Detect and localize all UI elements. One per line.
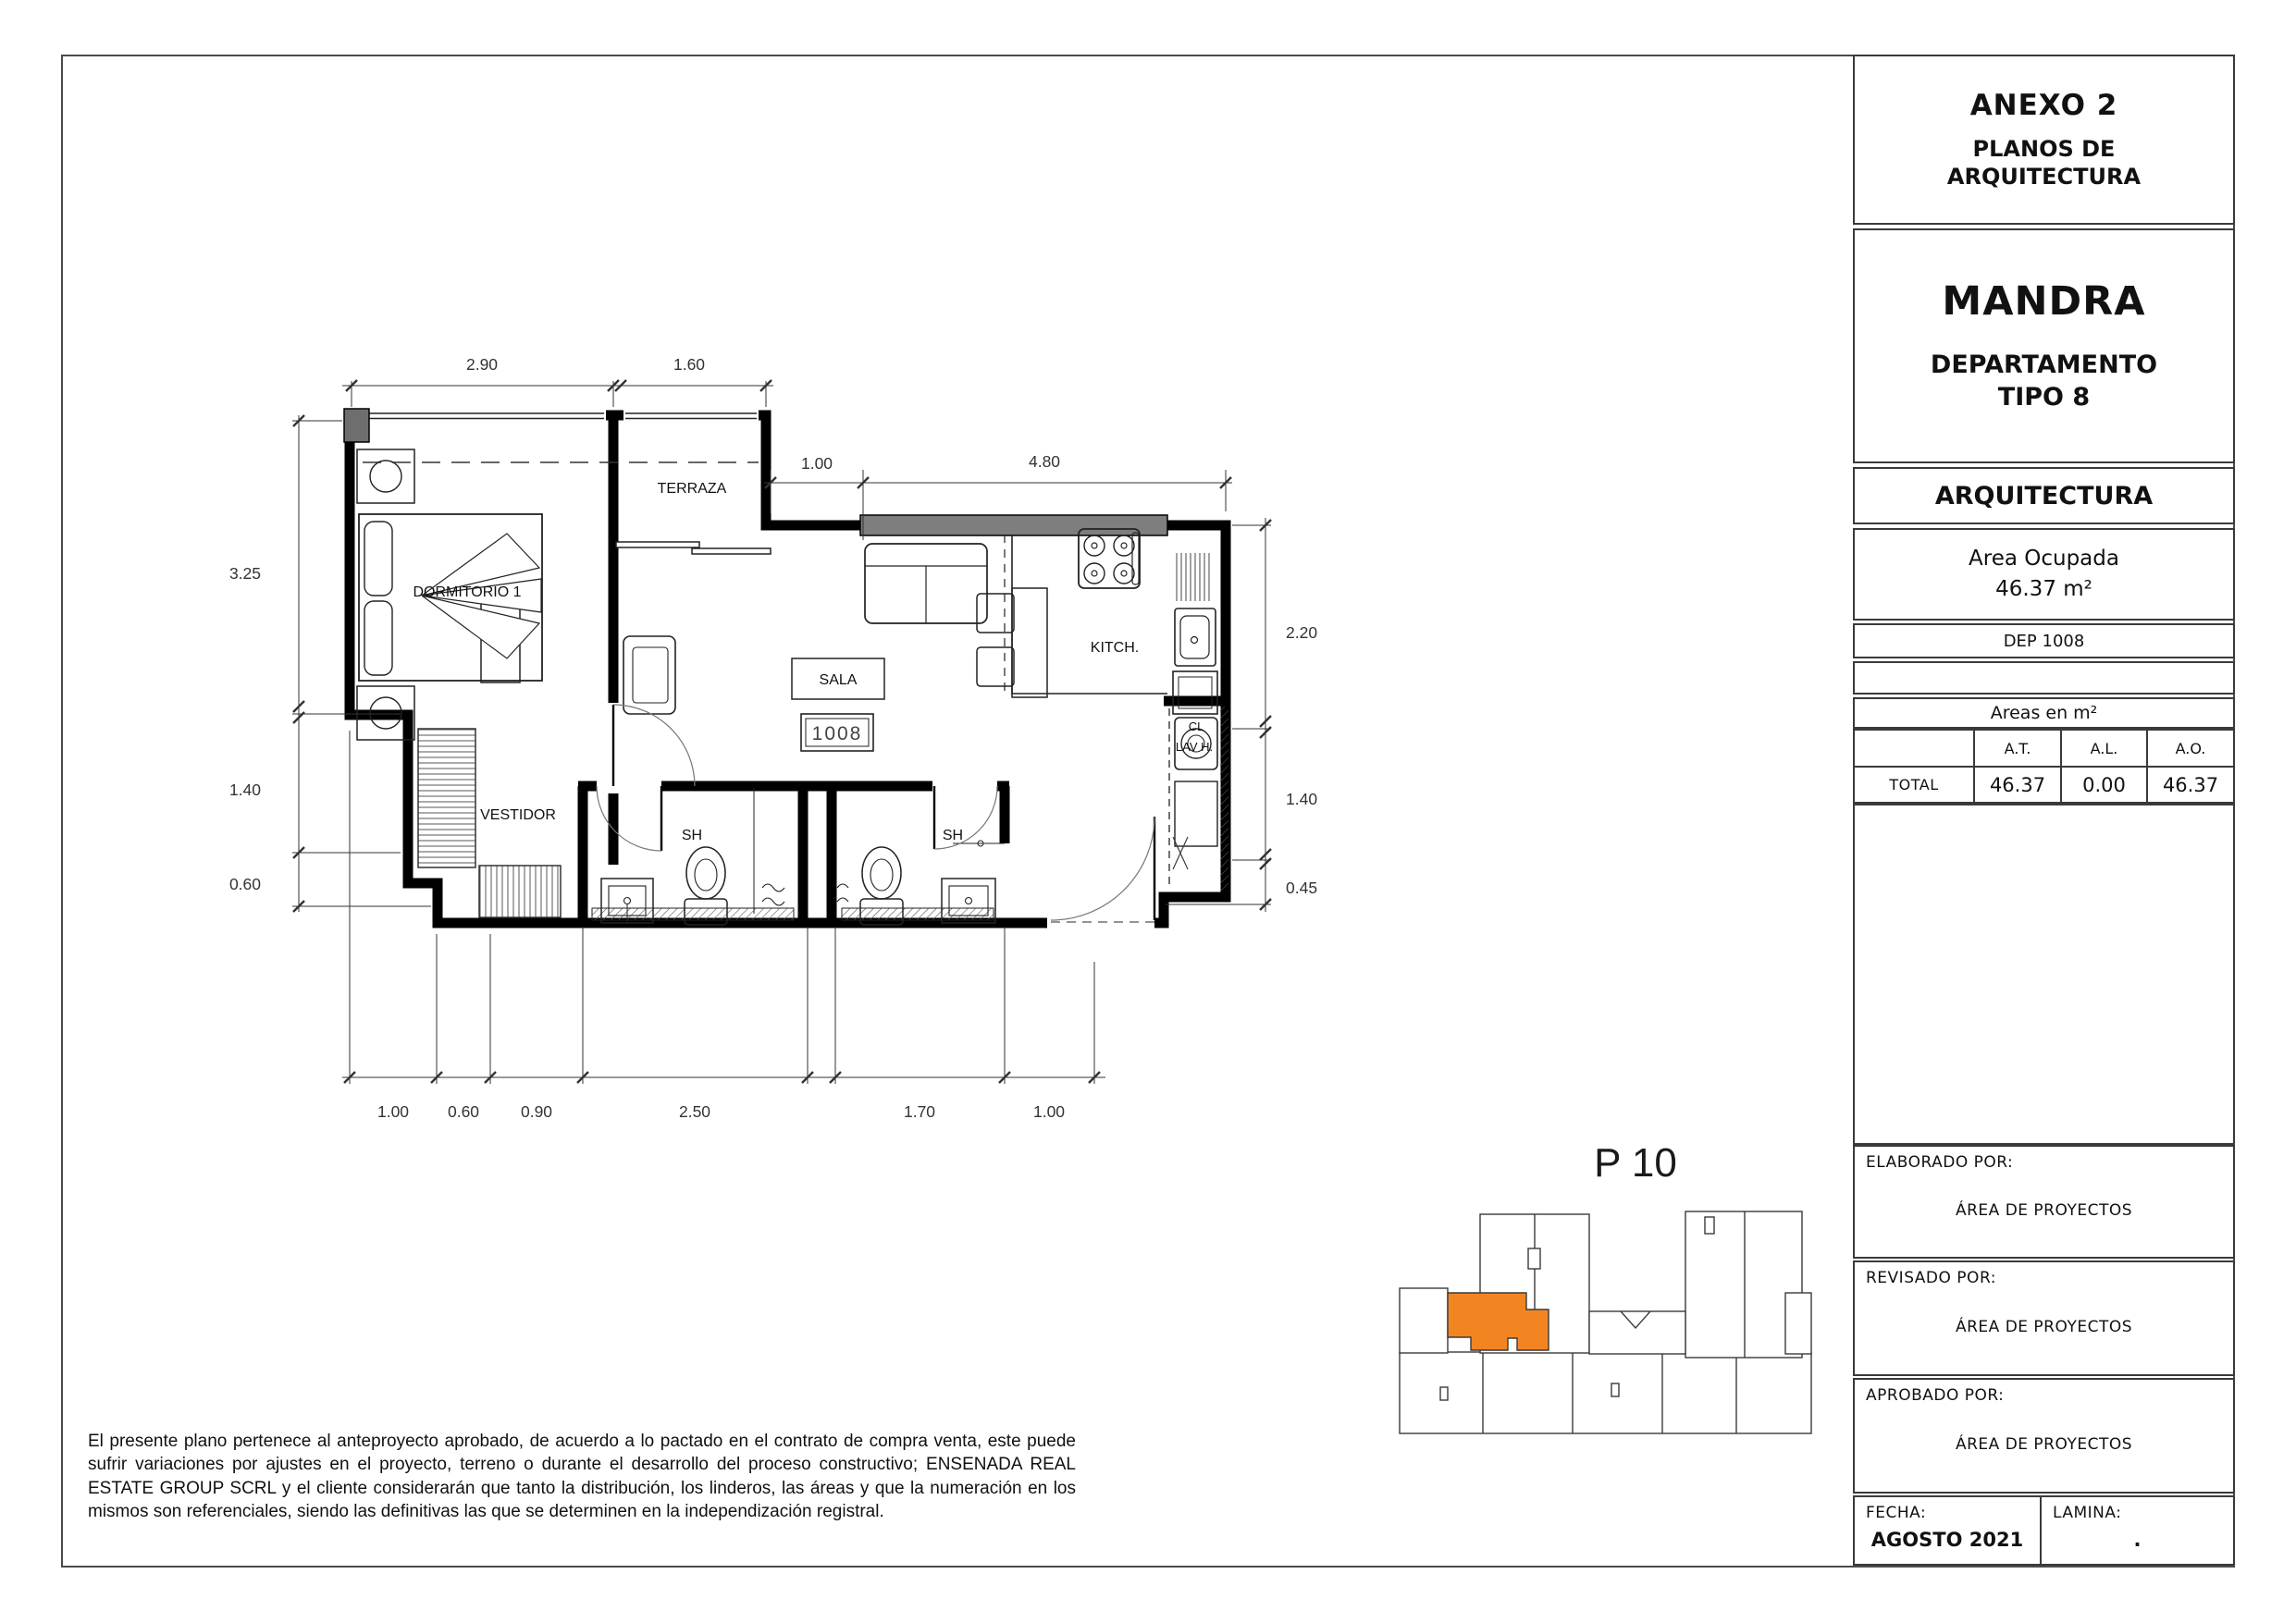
dim-label: 1.40 [229, 781, 261, 799]
approved-label: APROBADO POR: [1866, 1386, 2004, 1405]
disclaimer-text: El presente plano pertenece al anteproye… [88, 1430, 1076, 1523]
annex-title: ANEXO 2 [1970, 89, 2118, 122]
sheet-value: . [2134, 1529, 2142, 1551]
unit-code: DEP 1008 [2004, 632, 2085, 651]
titleblock-area: Area Ocupada 46.37 m² [1853, 528, 2235, 621]
unit-type-line1: DEPARTAMENTO [1931, 349, 2157, 381]
titleblock-spacer-small [1853, 661, 2235, 695]
dim-label: 2.50 [679, 1102, 710, 1121]
dim-label: 2.90 [466, 355, 498, 374]
doors [597, 705, 1154, 922]
dim-label: 0.90 [521, 1102, 552, 1121]
titleblock-annex: ANEXO 2 PLANOS DE ARQUITECTURA [1853, 55, 2235, 225]
wall-openings [597, 779, 1154, 930]
areas-corner-cell [1855, 731, 1973, 766]
area-label: Area Ocupada [1969, 544, 2119, 574]
titleblock-unitcode: DEP 1008 [1853, 623, 2235, 658]
areas-val-at: 46.37 [1973, 766, 2060, 802]
kitchen-vent [1177, 553, 1209, 601]
fridge [1173, 671, 1217, 714]
laundry-label: LAV H. [1176, 740, 1213, 754]
dim-label: 4.80 [1029, 452, 1060, 471]
dressing-label: VESTIDOR [480, 807, 556, 823]
key-plan-title: P 10 [1594, 1140, 1677, 1186]
date-label: FECHA: [1866, 1504, 1926, 1522]
bedroom-label: DORMITORIO 1 [413, 584, 521, 600]
areas-col-ao: A.O. [2146, 731, 2233, 766]
terrace-rail [623, 409, 759, 421]
areas-table-title: Areas en m² [1991, 703, 2098, 723]
stove [1079, 529, 1140, 588]
areas-col-al: A.L. [2060, 731, 2146, 766]
kitchen-fixtures [977, 529, 1217, 714]
titleblock-revised: REVISADO POR: ÁREA DE PROYECTOS [1853, 1260, 2235, 1376]
key-plan: P 10 [1400, 1140, 1811, 1433]
annex-subtitle-line1: PLANOS DE [1947, 135, 2141, 163]
terrace-label: TERRAZA [658, 481, 727, 497]
column [344, 409, 369, 442]
elaborated-label: ELABORADO POR: [1866, 1153, 2013, 1172]
bedroom-door [613, 705, 695, 786]
date-value: AGOSTO 2021 [1871, 1529, 2023, 1551]
dim-label: 0.45 [1286, 879, 1317, 897]
dim-label: 1.00 [1033, 1102, 1065, 1121]
bath1-door [597, 786, 661, 851]
elaborated-value: ÁREA DE PROYECTOS [1956, 1201, 2132, 1220]
armchair [623, 636, 675, 714]
areas-val-ao: 46.37 [2146, 766, 2233, 802]
dim-label: 3.25 [229, 564, 261, 583]
areas-col-at: A.T. [1973, 731, 2060, 766]
sofa [865, 544, 987, 623]
titleblock-approved: APROBADO POR: ÁREA DE PROYECTOS [1853, 1378, 2235, 1494]
dim-label: 1.00 [801, 454, 833, 473]
bathroom-2 [837, 841, 1005, 925]
kitchen-label: KITCH. [1091, 640, 1139, 656]
areas-table: A.T. A.L. A.O. TOTAL 46.37 0.00 46.37 [1853, 729, 2235, 804]
revised-label: REVISADO POR: [1866, 1269, 1996, 1287]
annex-subtitle-line2: ARQUITECTURA [1947, 163, 2141, 191]
titleblock-areas-title: Areas en m² [1853, 697, 2235, 729]
bedroom-window [365, 409, 606, 421]
dimension-labels: 2.90 1.60 1.00 4.80 3.25 1.40 0.60 2.20 … [229, 355, 1317, 1121]
kitchen-beam [860, 515, 1167, 535]
dim-label: 0.60 [448, 1102, 479, 1121]
bath2-label: SH [943, 828, 963, 843]
approved-value: ÁREA DE PROYECTOS [1956, 1435, 2132, 1454]
closet-label: CL [1189, 719, 1204, 733]
dim-label: 0.60 [229, 875, 261, 893]
area-value: 46.37 m² [1969, 574, 2119, 605]
dim-label: 1.00 [377, 1102, 409, 1121]
project-name: MANDRA [1942, 278, 2145, 325]
revised-value: ÁREA DE PROYECTOS [1956, 1318, 2132, 1336]
unit-type-line2: TIPO 8 [1931, 381, 2157, 413]
areas-row-label: TOTAL [1855, 766, 1973, 802]
dim-label: 1.60 [673, 355, 705, 374]
titleblock-elaborated: ELABORADO POR: ÁREA DE PROYECTOS [1853, 1145, 2235, 1259]
dim-label: 1.40 [1286, 790, 1317, 808]
titleblock-project: MANDRA DEPARTAMENTO TIPO 8 [1853, 228, 2235, 463]
living-label: SALA [820, 672, 858, 688]
titleblock-date: FECHA: AGOSTO 2021 [1853, 1495, 2042, 1566]
nightstand-top [357, 449, 414, 503]
terrace-sliding-door [616, 542, 771, 554]
living-furniture [481, 544, 987, 751]
titleblock-sheet: LAMINA: . [2040, 1495, 2235, 1566]
bathroom-1 [592, 788, 794, 925]
dim-label: 2.20 [1286, 623, 1317, 642]
entry-door [1051, 817, 1154, 922]
titleblock-spacer-tall [1853, 804, 2235, 1145]
laundry-closet [1169, 707, 1228, 891]
kitchen-sink [1175, 609, 1216, 666]
unit-tag: 1008 [812, 723, 863, 744]
areas-val-al: 0.00 [2060, 766, 2146, 802]
floor-plan: DORMITORIO 1 TERRAZA SALA KITCH. VESTIDO… [229, 355, 1317, 1121]
dim-top [342, 380, 773, 407]
titleblock-discipline: ARQUITECTURA [1853, 467, 2235, 524]
sheet-label: LAMINA: [2053, 1504, 2121, 1522]
bath1-label: SH [682, 828, 702, 843]
dim-label: 1.70 [904, 1102, 935, 1121]
discipline: ARQUITECTURA [1935, 482, 2153, 510]
